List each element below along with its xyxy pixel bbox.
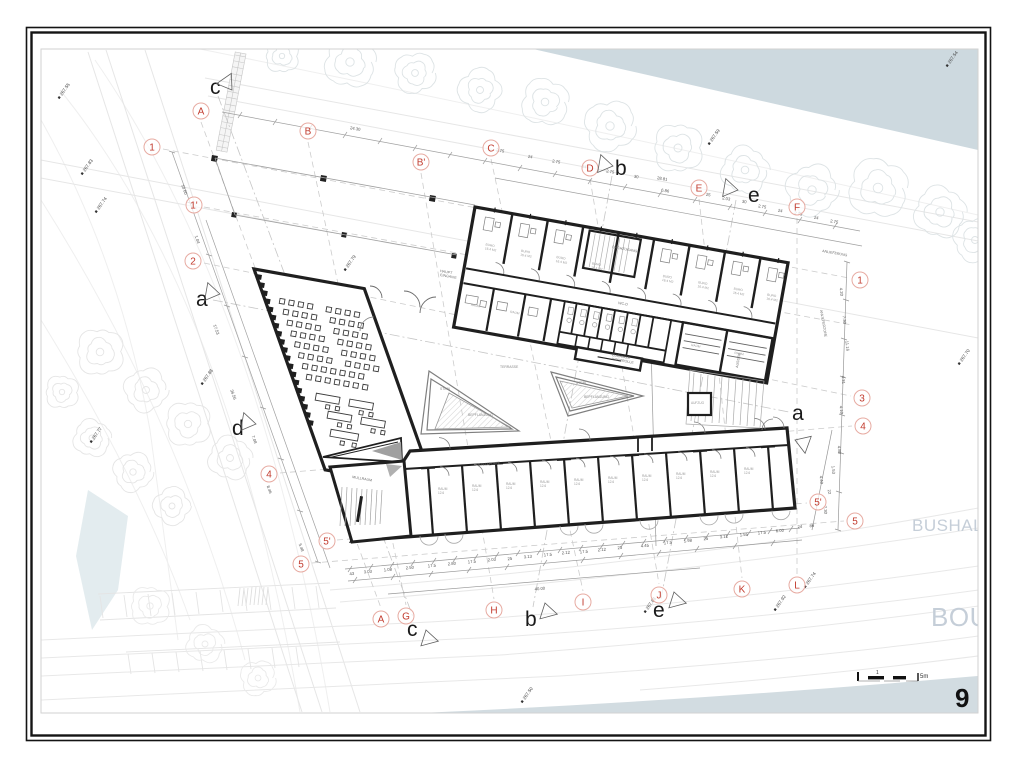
svg-text:3.12: 3.12 — [720, 534, 729, 540]
svg-text:2.80: 2.80 — [448, 561, 457, 567]
svg-text:2.03: 2.03 — [488, 557, 497, 563]
svg-text:B': B' — [417, 158, 426, 169]
svg-text:L: L — [794, 581, 800, 592]
svg-text:A: A — [198, 107, 205, 118]
svg-text:17.5: 17.5 — [544, 552, 553, 558]
svg-text:4.10: 4.10 — [839, 406, 845, 415]
svg-text:6.00: 6.00 — [776, 528, 785, 534]
svg-text:3: 3 — [859, 394, 865, 405]
svg-text:H: H — [490, 606, 497, 617]
svg-text:3.03: 3.03 — [364, 569, 373, 575]
svg-text:E: E — [696, 184, 703, 195]
svg-text:12.6: 12.6 — [608, 480, 614, 484]
svg-text:c: c — [407, 618, 418, 641]
svg-text:12.6: 12.6 — [710, 474, 716, 478]
svg-text:12.6: 12.6 — [540, 484, 546, 488]
svg-text:4: 4 — [266, 470, 272, 481]
svg-text:5: 5 — [852, 517, 858, 528]
svg-text:3.13: 3.13 — [524, 554, 533, 560]
svg-text:17.5: 17.5 — [468, 559, 477, 565]
svg-text:12.6: 12.6 — [574, 482, 580, 486]
svg-text:12.6: 12.6 — [472, 488, 478, 492]
svg-text:C: C — [487, 144, 494, 155]
svg-text:9: 9 — [955, 683, 969, 713]
svg-text:d: d — [232, 417, 244, 440]
svg-text:17.5: 17.5 — [758, 530, 767, 536]
svg-text:2.50: 2.50 — [406, 565, 415, 571]
svg-text:b: b — [615, 157, 627, 180]
svg-text:5: 5 — [298, 560, 304, 571]
svg-text:4: 4 — [860, 422, 866, 433]
svg-text:I: I — [582, 598, 585, 609]
svg-text:D: D — [586, 164, 593, 175]
svg-text:STEIN: STEIN — [576, 381, 587, 385]
svg-text:4.20: 4.20 — [839, 288, 845, 297]
svg-text:17.5: 17.5 — [428, 563, 437, 569]
svg-text:a: a — [792, 402, 804, 425]
svg-text:5m: 5m — [920, 674, 928, 680]
svg-text:5': 5' — [814, 498, 822, 509]
svg-text:e: e — [653, 599, 665, 622]
svg-text:1: 1 — [876, 670, 879, 676]
svg-text:1.53: 1.53 — [831, 466, 837, 475]
svg-text:BEPFLANZUNG: BEPFLANZUNG — [468, 413, 493, 417]
svg-text:A: A — [378, 615, 385, 626]
svg-text:4.80: 4.80 — [837, 446, 843, 455]
svg-text:12.6: 12.6 — [642, 478, 648, 482]
svg-text:F: F — [794, 203, 800, 214]
svg-text:1': 1' — [190, 201, 198, 212]
svg-text:4.40: 4.40 — [819, 476, 825, 485]
svg-text:B: B — [305, 127, 312, 138]
svg-text:b: b — [525, 608, 537, 631]
svg-text:4.31: 4.31 — [841, 376, 847, 385]
svg-text:1.98: 1.98 — [684, 538, 693, 544]
svg-text:AUFZUG: AUFZUG — [691, 401, 705, 405]
svg-text:17.5: 17.5 — [664, 540, 673, 546]
svg-text:12.6: 12.6 — [506, 486, 512, 490]
svg-text:4.45: 4.45 — [641, 543, 650, 549]
svg-text:K: K — [739, 585, 746, 596]
svg-text:1.55: 1.55 — [740, 532, 749, 538]
svg-text:11.16: 11.16 — [845, 341, 851, 352]
svg-text:1: 1 — [149, 143, 155, 154]
svg-text:5': 5' — [323, 537, 331, 548]
svg-text:12.6: 12.6 — [438, 491, 444, 495]
svg-text:40.00: 40.00 — [534, 586, 546, 592]
svg-text:TERRASSE: TERRASSE — [500, 365, 519, 369]
svg-text:c: c — [210, 76, 221, 99]
svg-text:1: 1 — [857, 276, 863, 287]
svg-text:17.5: 17.5 — [580, 549, 589, 555]
svg-text:e: e — [748, 184, 760, 207]
svg-text:1.08: 1.08 — [384, 567, 393, 573]
svg-text:BEPFLANZUNG: BEPFLANZUNG — [584, 395, 609, 399]
svg-text:12.6: 12.6 — [744, 471, 750, 475]
svg-text:2.12: 2.12 — [598, 547, 607, 553]
svg-text:7.30: 7.30 — [842, 316, 848, 325]
svg-text:STEIN: STEIN — [440, 387, 451, 391]
svg-text:2.12: 2.12 — [562, 550, 571, 556]
svg-text:12.6: 12.6 — [676, 476, 682, 480]
svg-text:2: 2 — [190, 257, 196, 268]
